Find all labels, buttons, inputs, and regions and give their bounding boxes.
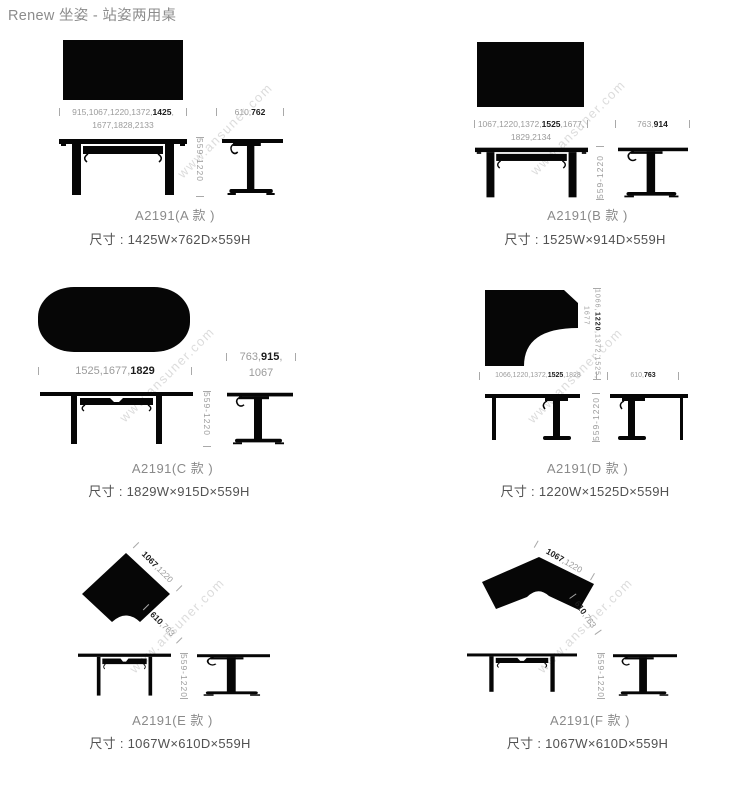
dim-tick — [689, 120, 690, 128]
spec-sheet: Renew 坐姿 - 站姿两用桌 www.ansuner.com 915,106… — [0, 0, 748, 794]
width-dimension-c: 1525,1677,1829 — [38, 364, 192, 378]
front-view-d — [485, 392, 580, 442]
dim-text: 610,762 — [217, 107, 283, 117]
side-view-e — [197, 652, 270, 698]
model-name-d: A2191(D 款 ) — [440, 458, 735, 477]
height-dimension-e: 559-1220 — [177, 653, 191, 698]
top-view-a — [63, 40, 183, 100]
height-dimension-b: 559-1220 — [593, 146, 607, 200]
panel-d: www.ansuner.com 1066,1220,1372,1525, 167… — [440, 280, 740, 505]
dim-tick — [596, 372, 597, 380]
side-view-b — [618, 145, 688, 200]
dim-text: 1066,1220,1372,1525,1828 — [480, 372, 596, 379]
depth-dimension-a: 610,762 — [216, 106, 284, 117]
dim-text: 559-1220 — [595, 147, 605, 199]
model-size-f: 尺寸 : 1067W×610D×559H — [460, 733, 715, 752]
model-size-c: 尺寸 : 1829W×915D×559H — [30, 481, 308, 500]
side-view-f — [613, 652, 677, 698]
dim-text: 1677 — [583, 306, 590, 352]
height-dimension-f: 559-1220 — [594, 653, 608, 698]
height-dimension-a: 559-1220 — [193, 137, 207, 197]
top-view-c — [38, 287, 190, 352]
panel-b: www.ansuner.com 1067,1220,1372,1525,1677… — [440, 35, 740, 255]
top-view-b — [477, 42, 584, 107]
dim-text: 559-1220 — [179, 654, 189, 698]
model-name-f: A2191(F 款 ) — [460, 710, 720, 729]
dim-text: 1066,1220,1372,1525, — [594, 289, 601, 379]
dim-tick — [592, 441, 600, 442]
front-view-c — [40, 390, 193, 447]
panel-f: www.ansuner.com 1067,1220 610,763 559-12… — [460, 525, 730, 765]
dim-tick — [191, 367, 192, 375]
depth-dimension-c: 763,915, — [226, 350, 296, 364]
model-name-b: A2191(B 款 ) — [440, 205, 735, 224]
front-view-e — [78, 652, 171, 698]
dim-text: 1067,1220,1372,1525,1677, — [475, 119, 587, 129]
model-name-e: A2191(E 款 ) — [60, 710, 285, 729]
model-size-a: 尺寸 : 1425W×762D×559H — [40, 229, 300, 248]
panel-a: www.ansuner.com 915,1067,1220,1372,1425,… — [40, 35, 320, 255]
dim-tick — [186, 108, 187, 116]
depth-dimension-c-line2: 1067 — [226, 367, 296, 379]
model-size-e: 尺寸 : 1067W×610D×559H — [60, 733, 280, 752]
dim-text: 915,1067,1220,1372,1425, — [60, 107, 186, 117]
dim-text: 559-1220 — [591, 394, 601, 441]
depth-dimension-b: 763,914 — [615, 118, 690, 129]
dim-tick — [678, 372, 679, 380]
side-view-c — [227, 390, 293, 447]
dim-text: 763,914 — [616, 119, 689, 129]
panel-e: www.ansuner.com 1067,1220 610,763 559-12… — [60, 525, 320, 765]
width-dimension-a-line2: 1677,1828,2133 — [59, 120, 187, 130]
dim-text: 763,915, — [227, 351, 295, 363]
page-title: Renew 坐姿 - 站姿两用桌 — [8, 4, 176, 25]
model-name-a: A2191(A 款 ) — [40, 205, 310, 224]
panel-c: www.ansuner.com 1525,1677,1829 763,915, … — [30, 280, 320, 505]
dim-tick — [597, 698, 605, 699]
height-dimension-c: 559-1220 — [200, 391, 214, 447]
model-size-b: 尺寸 : 1525W×914D×559H — [440, 229, 730, 248]
dim-tick — [587, 120, 588, 128]
width-dimension-a: 915,1067,1220,1372,1425, — [59, 106, 187, 117]
dim-text: 559-1220 — [596, 654, 606, 698]
front-view-a — [59, 136, 187, 198]
dim-tick — [203, 446, 211, 447]
dim-text: 610,763 — [608, 372, 678, 379]
model-name-c: A2191(C 款 ) — [30, 458, 315, 477]
width-dimension-b-line2: 1829,2134 — [474, 132, 588, 142]
side-dimension-d-line2: 1677 — [579, 306, 593, 352]
dim-text: 559-1220 — [195, 138, 205, 196]
dim-tick — [180, 698, 188, 699]
dim-tick — [283, 108, 284, 116]
width-dimension-d: 1066,1220,1372,1525,1828 — [479, 370, 597, 381]
dim-text: 559-1220 — [202, 392, 212, 446]
side-view-a — [222, 136, 283, 198]
top-view-d — [485, 290, 578, 366]
dim-text: 1525,1677,1829 — [39, 365, 191, 377]
dim-tick — [196, 196, 204, 197]
dim-tick — [295, 353, 296, 361]
front-view-f — [467, 652, 577, 694]
model-size-d: 尺寸 : 1220W×1525D×559H — [440, 481, 730, 500]
side-view-d — [610, 392, 688, 442]
front-view-b — [475, 145, 588, 200]
dim-tick — [596, 199, 604, 200]
height-dimension-d: 559-1220 — [589, 393, 603, 442]
depth-dimension-d: 610,763 — [607, 370, 679, 381]
width-dimension-b: 1067,1220,1372,1525,1677, — [474, 118, 588, 129]
